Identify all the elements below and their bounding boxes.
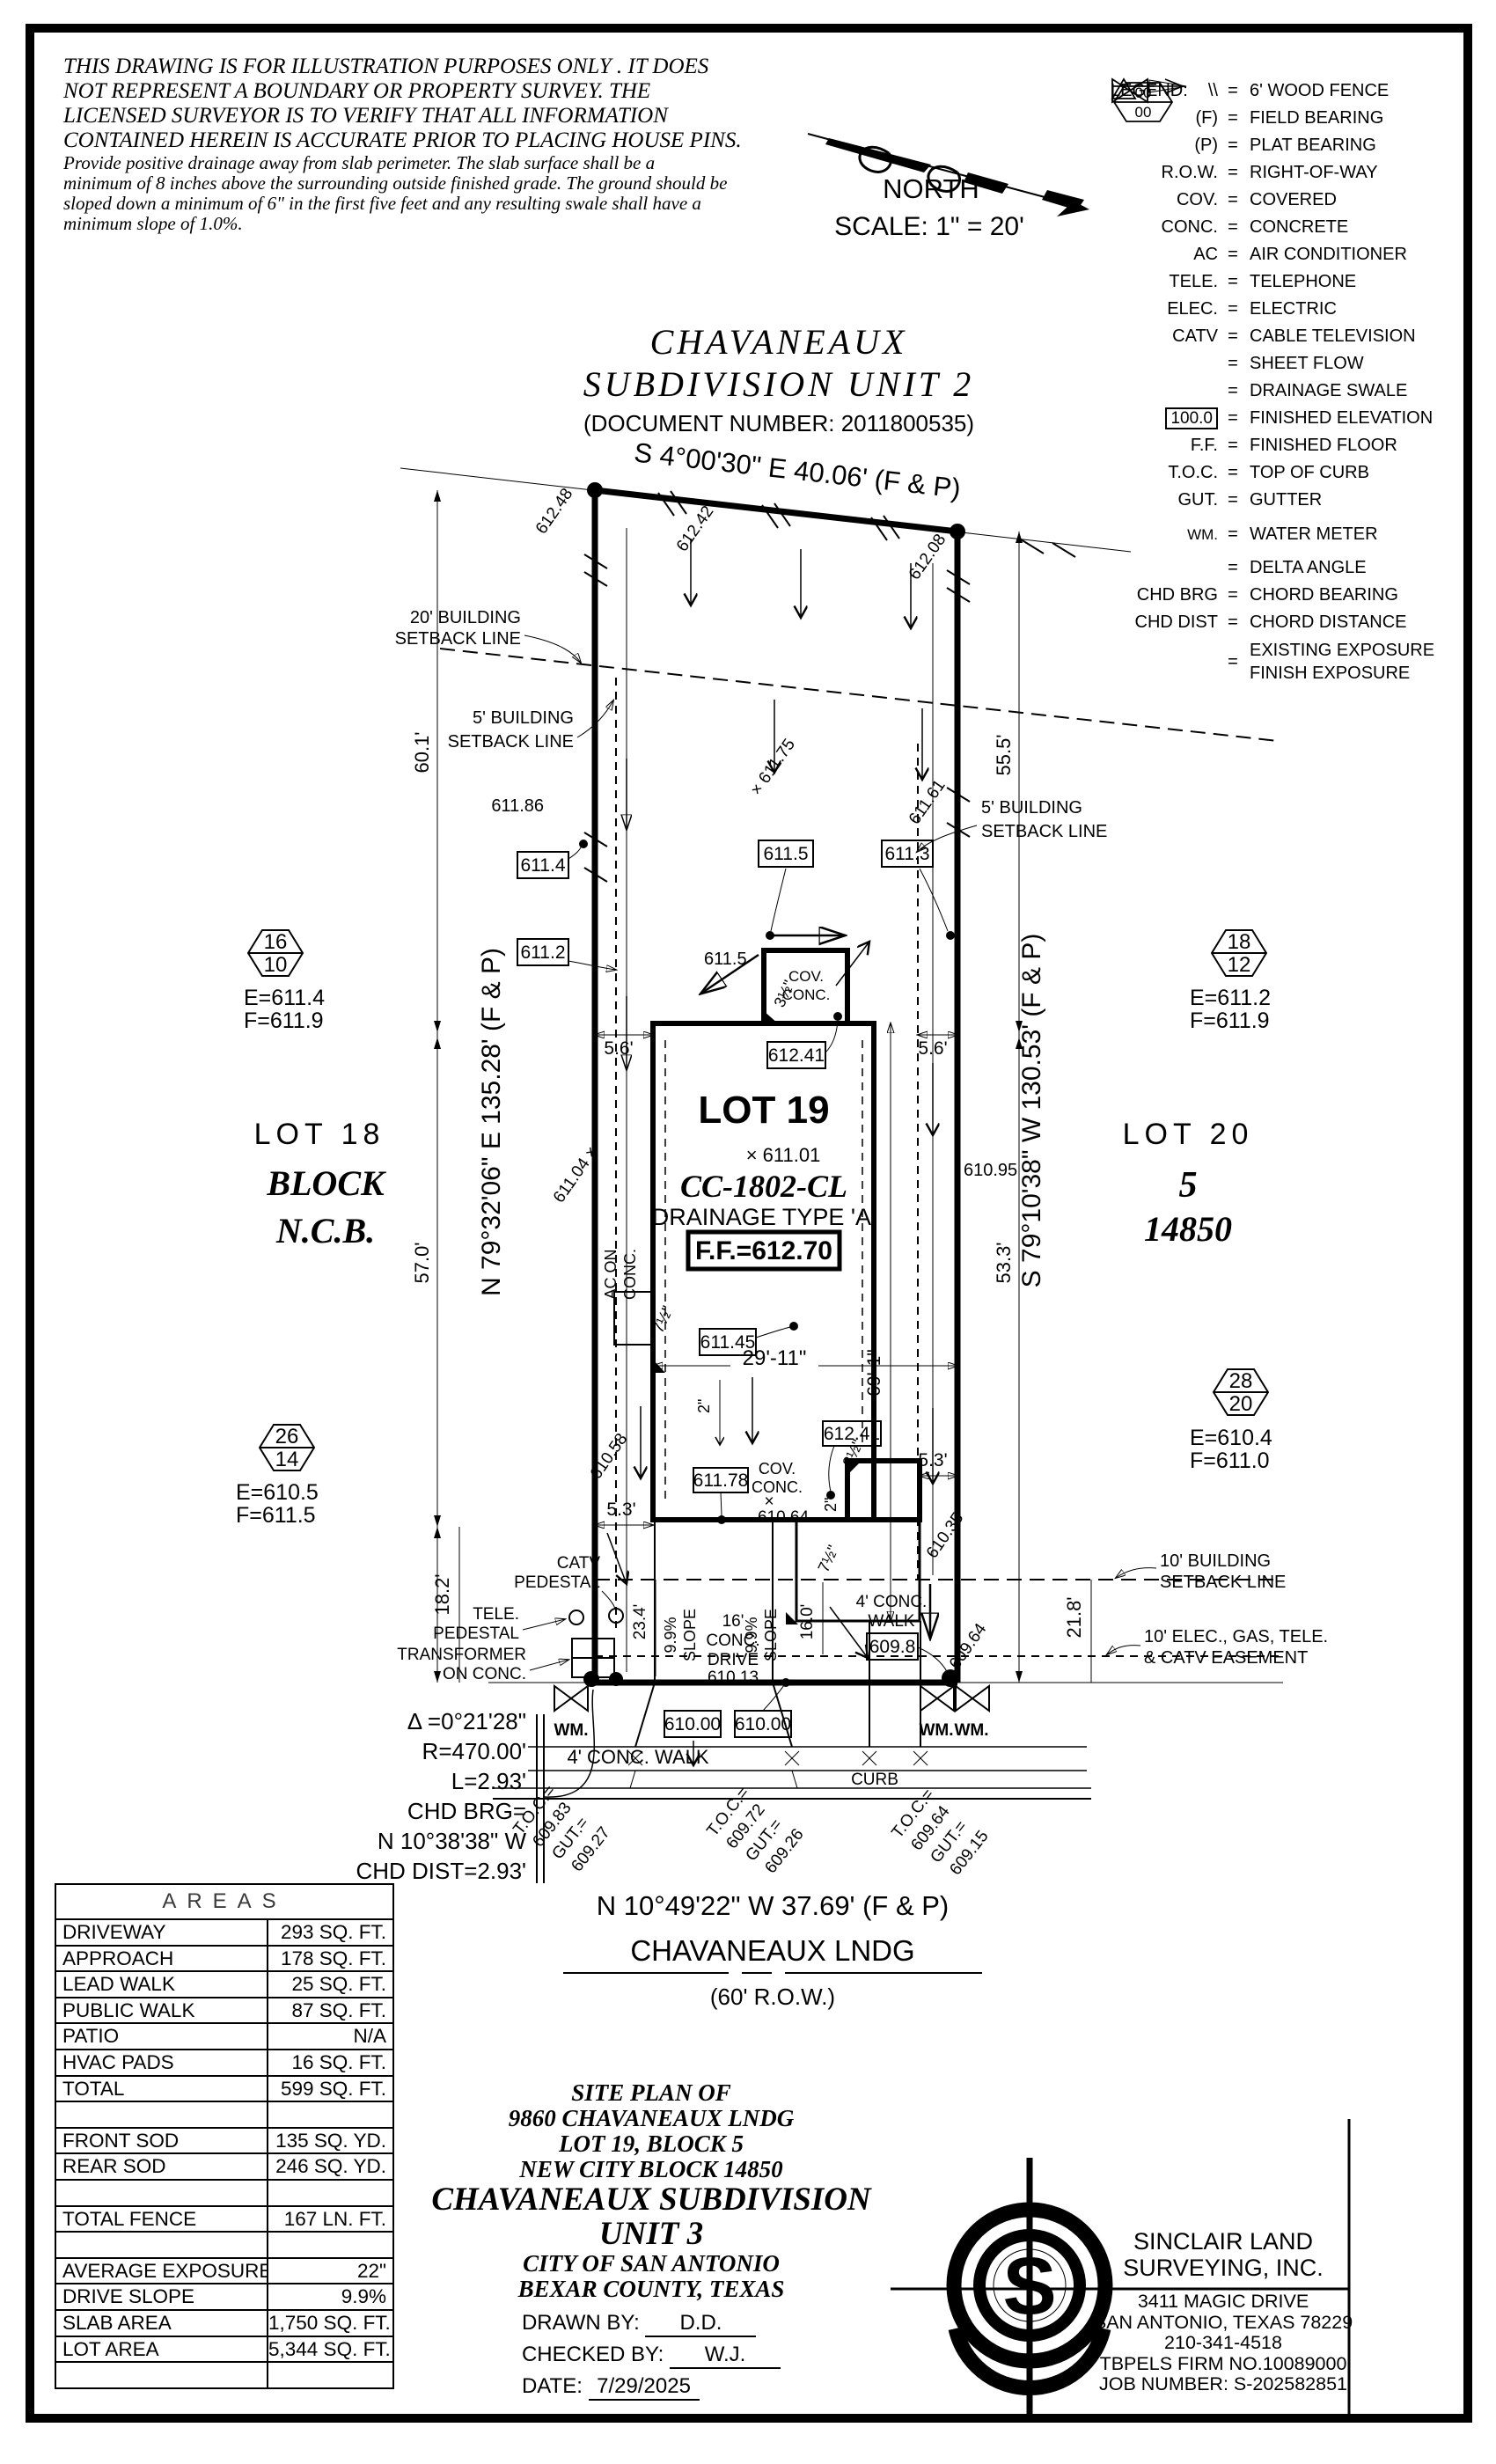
exposure-marker-28-20: 28 20 E=610.4 F=611.0 (1190, 1369, 1272, 1473)
slope-label-right: 9.9% SLOPE (743, 1609, 780, 1661)
svg-text:9.9%: 9.9% (662, 1617, 679, 1653)
table-row: APPROACH178 SQ. FT. (55, 1945, 394, 1973)
table-row: LOT AREA5,344 SQ. FT. (55, 2336, 394, 2364)
svg-text:612.41: 612.41 (768, 1045, 825, 1066)
table-row: TOTAL FENCE167 LN. FT. (55, 2205, 394, 2233)
lot19-label: LOT 19 (698, 1089, 829, 1132)
svg-text:00: 00 (1135, 104, 1152, 121)
dim-7half-porch: 7½" (814, 1543, 841, 1575)
dimension-lines (434, 490, 1091, 1683)
svg-text:14: 14 (275, 1448, 299, 1471)
svg-text:611.78: 611.78 (693, 1470, 749, 1491)
table-row: REAR SOD246 SQ. YD. (55, 2152, 394, 2181)
rear-cov-conc-line1: COV. (788, 968, 824, 985)
table-row: DRIVEWAY293 SQ. FT. (55, 1918, 394, 1947)
svg-text:F=611.9: F=611.9 (1190, 1008, 1270, 1033)
survey-sheet: NORTH SCALE: 1" = 20' CHAVANEAUX SUBDIVI… (0, 0, 1496, 2464)
dim-2in-porch: 2" (822, 1498, 840, 1512)
svg-text:10' BUILDING: 10' BUILDING (1160, 1551, 1271, 1571)
svg-text:E=610.5: E=610.5 (236, 1480, 319, 1505)
svg-text:SETBACK LINE: SETBACK LINE (981, 822, 1107, 841)
lot-block-line: LOT 19, BLOCK 5 (387, 2131, 915, 2157)
svg-text:× 611.75: × 611.75 (747, 736, 799, 799)
svg-text:R=470.00': R=470.00' (422, 1738, 526, 1764)
checked-by-value: W.J. (670, 2343, 781, 2369)
svg-text:612.42: 612.42 (673, 502, 718, 555)
disclaimer-note: THIS DRAWING IS FOR ILLUSTRATION PURPOSE… (63, 55, 759, 234)
svg-text:12: 12 (1228, 953, 1251, 977)
drainage-note-line: Provide positive drainage away from slab… (63, 153, 759, 173)
street-name: CHAVANEAUX LNDG (630, 1934, 914, 1967)
dim-5-6-right: 5.6' (918, 1038, 947, 1059)
svg-text:WM.: WM. (954, 1721, 988, 1740)
checked-by-label: CHECKED BY: (522, 2343, 664, 2366)
svg-text:28: 28 (1229, 1369, 1253, 1393)
porch-cov-conc-line1: COV. (759, 1460, 796, 1478)
dim-53-3: 53.3' (993, 1242, 1015, 1283)
svg-text:TRANSFORMER: TRANSFORMER (397, 1646, 526, 1664)
drawn-by-value: D.D. (645, 2311, 756, 2337)
dim-5-3-left: 5.3' (606, 1500, 635, 1520)
disclaimer-line: CONTAINED HEREIN IS ACCURATE PRIOR TO PL… (63, 128, 759, 153)
dim-2in-yard: 2" (695, 1399, 713, 1413)
svg-text:611.5: 611.5 (764, 844, 809, 864)
subdivision-line: CHAVANEAUX SUBDIVISION (387, 2182, 915, 2217)
legend: LEGEND:\\=6' WOOD FENCE (F)=FIELD BEARIN… (1111, 77, 1463, 687)
lot18-ncb: N.C.B. (275, 1211, 375, 1250)
svg-text:610.95: 610.95 (964, 1161, 1017, 1180)
svg-text:5' BUILDING: 5' BUILDING (981, 798, 1082, 818)
table-row: LEAD WALK25 SQ. FT. (55, 1970, 394, 1998)
easement-label: 10' ELEC., GAS, TELE. & CATV EASEMENT (1107, 1627, 1328, 1668)
drawn-by-label: DRAWN BY: (522, 2311, 640, 2335)
lot18-label: LOT 18 (254, 1118, 385, 1151)
svg-text:9.9%: 9.9% (743, 1617, 760, 1653)
setback-5-left-label: 5' BUILDING SETBACK LINE (448, 700, 613, 752)
svg-text:SETBACK LINE: SETBACK LINE (1160, 1573, 1286, 1592)
street-row: (60' R.O.W.) (710, 1984, 835, 2010)
utility-labels: CATV PEDESTAL TELE. PEDESTAL TRANSFORMER… (397, 1554, 623, 1683)
svg-text:10' ELEC., GAS, TELE.: 10' ELEC., GAS, TELE. (1144, 1627, 1328, 1646)
svg-text:610.64: 610.64 (758, 1508, 810, 1527)
svg-text:16: 16 (264, 930, 288, 954)
dim-55-5: 55.5' (993, 734, 1015, 775)
slope-label-left: 9.9% SLOPE (662, 1609, 699, 1661)
svg-text:611.61: 611.61 (906, 776, 950, 827)
right-bearing-label: S 79°10'38" W 130.53' (F & P) (1017, 934, 1046, 1288)
lot18-block: BLOCK (266, 1163, 386, 1203)
date-value: 7/29/2025 (589, 2374, 700, 2401)
table-row: DRIVE SLOPE9.9% (55, 2283, 394, 2311)
svg-text:612.48: 612.48 (532, 485, 577, 538)
toc-gutter-markers: T.O.C.= 609.83 GUT.= 609.27 T.O.C.= 609.… (510, 1782, 992, 1879)
city-line: CITY OF SAN ANTONIO (387, 2251, 915, 2277)
front-bearing-label: N 10°49'22" W 37.69' (F & P) (597, 1890, 950, 1921)
exposure-marker-18-12: 18 12 E=611.2 F=611.9 (1190, 930, 1271, 1033)
svg-text:5' BUILDING: 5' BUILDING (473, 708, 574, 728)
table-row: PUBLIC WALK87 SQ. FT. (55, 1997, 394, 2025)
svg-text:609.64: 609.64 (946, 1620, 991, 1673)
setback-10-label: 10' BUILDING SETBACK LINE (1116, 1551, 1286, 1592)
finished-floor-label: F.F.=612.70 (695, 1236, 832, 1265)
firm-address-line2: SAN ANTONIO, TEXAS 78229 (1091, 2313, 1355, 2334)
table-row (55, 2179, 394, 2207)
subdivision-doc-number: (DOCUMENT NUMBER: 2011800535) (583, 410, 974, 436)
scale-label: SCALE: 1" = 20' (834, 212, 1024, 241)
curb-label: CURB (851, 1771, 898, 1789)
title-line: SITE PLAN OF (387, 2080, 915, 2106)
svg-text:609.8: 609.8 (869, 1637, 916, 1657)
svg-text:20' BUILDING: 20' BUILDING (410, 608, 521, 627)
rear-bearing-label: S 4°00'30" E 40.06' (F & P) (633, 436, 963, 503)
svg-text:SETBACK LINE: SETBACK LINE (448, 732, 574, 752)
table-row: AVERAGE EXPOSURE22" (55, 2257, 394, 2285)
public-walk-label: 4' CONC. WALK (567, 1746, 708, 1768)
table-row: HVAC PADS16 SQ. FT. (55, 2049, 394, 2077)
unit-line: UNIT 3 (387, 2217, 915, 2251)
logo-letter: S (1002, 2241, 1056, 2331)
svg-text:SLOPE: SLOPE (681, 1609, 699, 1661)
dim-57-0: 57.0' (411, 1242, 433, 1283)
svg-text:ON CONC.: ON CONC. (443, 1665, 526, 1683)
lot20-ncb: 14850 (1144, 1209, 1232, 1249)
svg-text:20: 20 (1229, 1392, 1253, 1416)
firm-name-line1: SINCLAIR LAND (1091, 2228, 1355, 2255)
svg-text:CHD BRG=: CHD BRG= (407, 1798, 526, 1824)
svg-text:612.08: 612.08 (906, 531, 950, 583)
drainage-note-line: minimum slope of 1.0%. (63, 214, 759, 234)
drainage-note-line: sloped down a minimum of 6" in the first… (63, 194, 759, 214)
date-label: DATE: (522, 2374, 583, 2398)
exposure-marker-26-14: 26 14 E=610.5 F=611.5 (236, 1425, 319, 1528)
firm-license-number: TBPELS FIRM NO.10089000 (1091, 2354, 1355, 2375)
svg-text:WM.: WM. (554, 1721, 588, 1740)
finished-elevation-symbol: 100.0 (1111, 408, 1223, 429)
water-meter-icon: WM. (1111, 528, 1223, 541)
disclaimer-line: THIS DRAWING IS FOR ILLUSTRATION PURPOSE… (63, 55, 759, 79)
lot20-block: 5 (1179, 1165, 1198, 1206)
svg-text:611.4: 611.4 (521, 855, 566, 876)
svg-text:Δ =0°21'28": Δ =0°21'28" (407, 1708, 526, 1734)
svg-text:18: 18 (1228, 930, 1251, 954)
svg-text:610.35: 610.35 (923, 1509, 968, 1562)
svg-text:E=611.2: E=611.2 (1190, 986, 1271, 1010)
svg-text:SETBACK LINE: SETBACK LINE (395, 629, 521, 649)
drive-spot-610-13: 610.13 (708, 1668, 759, 1687)
table-row (55, 2231, 394, 2259)
svg-text:PEDESTAL: PEDESTAL (514, 1573, 600, 1592)
svg-text:WM.: WM. (919, 1721, 953, 1740)
svg-text:CHD DIST=2.93': CHD DIST=2.93' (356, 1858, 526, 1884)
county-line: BEXAR COUNTY, TEXAS (387, 2277, 915, 2302)
north-label: NORTH (883, 173, 979, 204)
svg-text:CATV: CATV (557, 1554, 601, 1573)
lot19-spot-elevation: × 611.01 (746, 1144, 821, 1166)
dim-18-2: 18.2' (431, 1573, 453, 1615)
svg-text:611.86: 611.86 (491, 796, 544, 816)
ac-on-conc-line2: CONC. (621, 1249, 639, 1300)
lead-walk-label-2: WALK (868, 1612, 914, 1631)
areas-table-title: AREAS (55, 1883, 394, 1920)
svg-text:PEDESTAL: PEDESTAL (433, 1624, 519, 1643)
table-row: PATION/A (55, 2022, 394, 2050)
table-row: SLAB AREA1,750 SQ. FT. (55, 2309, 394, 2337)
dim-23-4: 23.4' (631, 1604, 649, 1640)
svg-text:N 10°38'38" W: N 10°38'38" W (378, 1828, 527, 1854)
svg-text:E=611.4: E=611.4 (244, 986, 325, 1010)
svg-text:610.00: 610.00 (664, 1714, 721, 1734)
table-row (55, 2361, 394, 2389)
subdivision-name-line1: CHAVANEAUX (650, 322, 908, 362)
dim-60-1: 60.1' (411, 731, 433, 773)
title-block: SITE PLAN OF 9860 CHAVANEAUX LNDG LOT 19… (387, 2080, 915, 2406)
wood-fence-symbol: \\ (1195, 81, 1223, 101)
dim-21-8: 21.8' (1063, 1596, 1085, 1638)
firm-phone: 210-341-4518 (1091, 2333, 1355, 2354)
disclaimer-line: LICENSED SURVEYOR IS TO VERIFY THAT ALL … (63, 104, 759, 128)
table-row (55, 2101, 394, 2129)
svg-text:611.2: 611.2 (521, 942, 566, 963)
svg-text:SLOPE: SLOPE (762, 1609, 780, 1661)
svg-text:10: 10 (264, 953, 288, 977)
svg-text:TELE.: TELE. (473, 1605, 519, 1624)
subdivision-name-line2: SUBDIVISION UNIT 2 (583, 364, 975, 404)
table-row: TOTAL599 SQ. FT. (55, 2075, 394, 2103)
lot20-label: LOT 20 (1123, 1118, 1254, 1151)
exposure-marker-16-10: 16 10 E=611.4 F=611.9 (244, 930, 325, 1033)
svg-text:00: 00 (1135, 84, 1152, 101)
firm-name-line2: SURVEYING, INC. (1091, 2255, 1355, 2281)
drive-label-1: 16' (722, 1612, 744, 1631)
left-bearing-label: N 79°32'06" E 135.28' (F & P) (477, 948, 506, 1296)
surveyor-firm-info: SINCLAIR LAND SURVEYING, INC. 3411 MAGIC… (1091, 2228, 1355, 2395)
site-address: 9860 CHAVANEAUX LNDG (387, 2106, 915, 2131)
svg-text:F=611.0: F=611.0 (1190, 1448, 1270, 1473)
setback-lines (440, 528, 1280, 1672)
porch-cov-conc-line2: CONC. (752, 1478, 803, 1496)
svg-text:& CATV EASEMENT: & CATV EASEMENT (1144, 1648, 1308, 1668)
ac-on-conc-line1: AC ON (602, 1249, 620, 1299)
disclaimer-line: NOT REPRESENT A BOUNDARY OR PROPERTY SUR… (63, 79, 759, 104)
svg-text:611.45: 611.45 (700, 1332, 756, 1353)
new-city-block-line: NEW CITY BLOCK 14850 (387, 2157, 915, 2182)
table-row: FRONT SOD135 SQ. YD. (55, 2127, 394, 2155)
svg-text:611.3: 611.3 (885, 844, 930, 864)
firm-address-line1: 3411 MAGIC DRIVE (1091, 2292, 1355, 2313)
svg-text:F=611.5: F=611.5 (236, 1503, 316, 1528)
lead-walk-label-1: 4' CONC. (856, 1593, 928, 1611)
svg-text:F=611.9: F=611.9 (244, 1008, 324, 1033)
areas-table: AREAS DRIVEWAY293 SQ. FT. APPROACH178 SQ… (55, 1883, 394, 2389)
lot19-drainage-type: DRAINAGE TYPE 'A' (652, 1204, 876, 1230)
svg-text:L=2.93': L=2.93' (451, 1768, 526, 1794)
svg-text:E=610.4: E=610.4 (1190, 1426, 1272, 1450)
setback-5-right-label: 5' BUILDING SETBACK LINE (917, 798, 1107, 852)
drainage-note-line: minimum of 8 inches above the surroundin… (63, 173, 759, 194)
lot19-plan-code: CC-1802-CL (680, 1169, 847, 1204)
surveyor-logo: S (954, 2210, 1105, 2388)
svg-text:26: 26 (275, 1425, 299, 1448)
dim-5-6-left: 5.6' (604, 1038, 633, 1059)
job-number: JOB NUMBER: S-202582851 (1091, 2374, 1355, 2395)
